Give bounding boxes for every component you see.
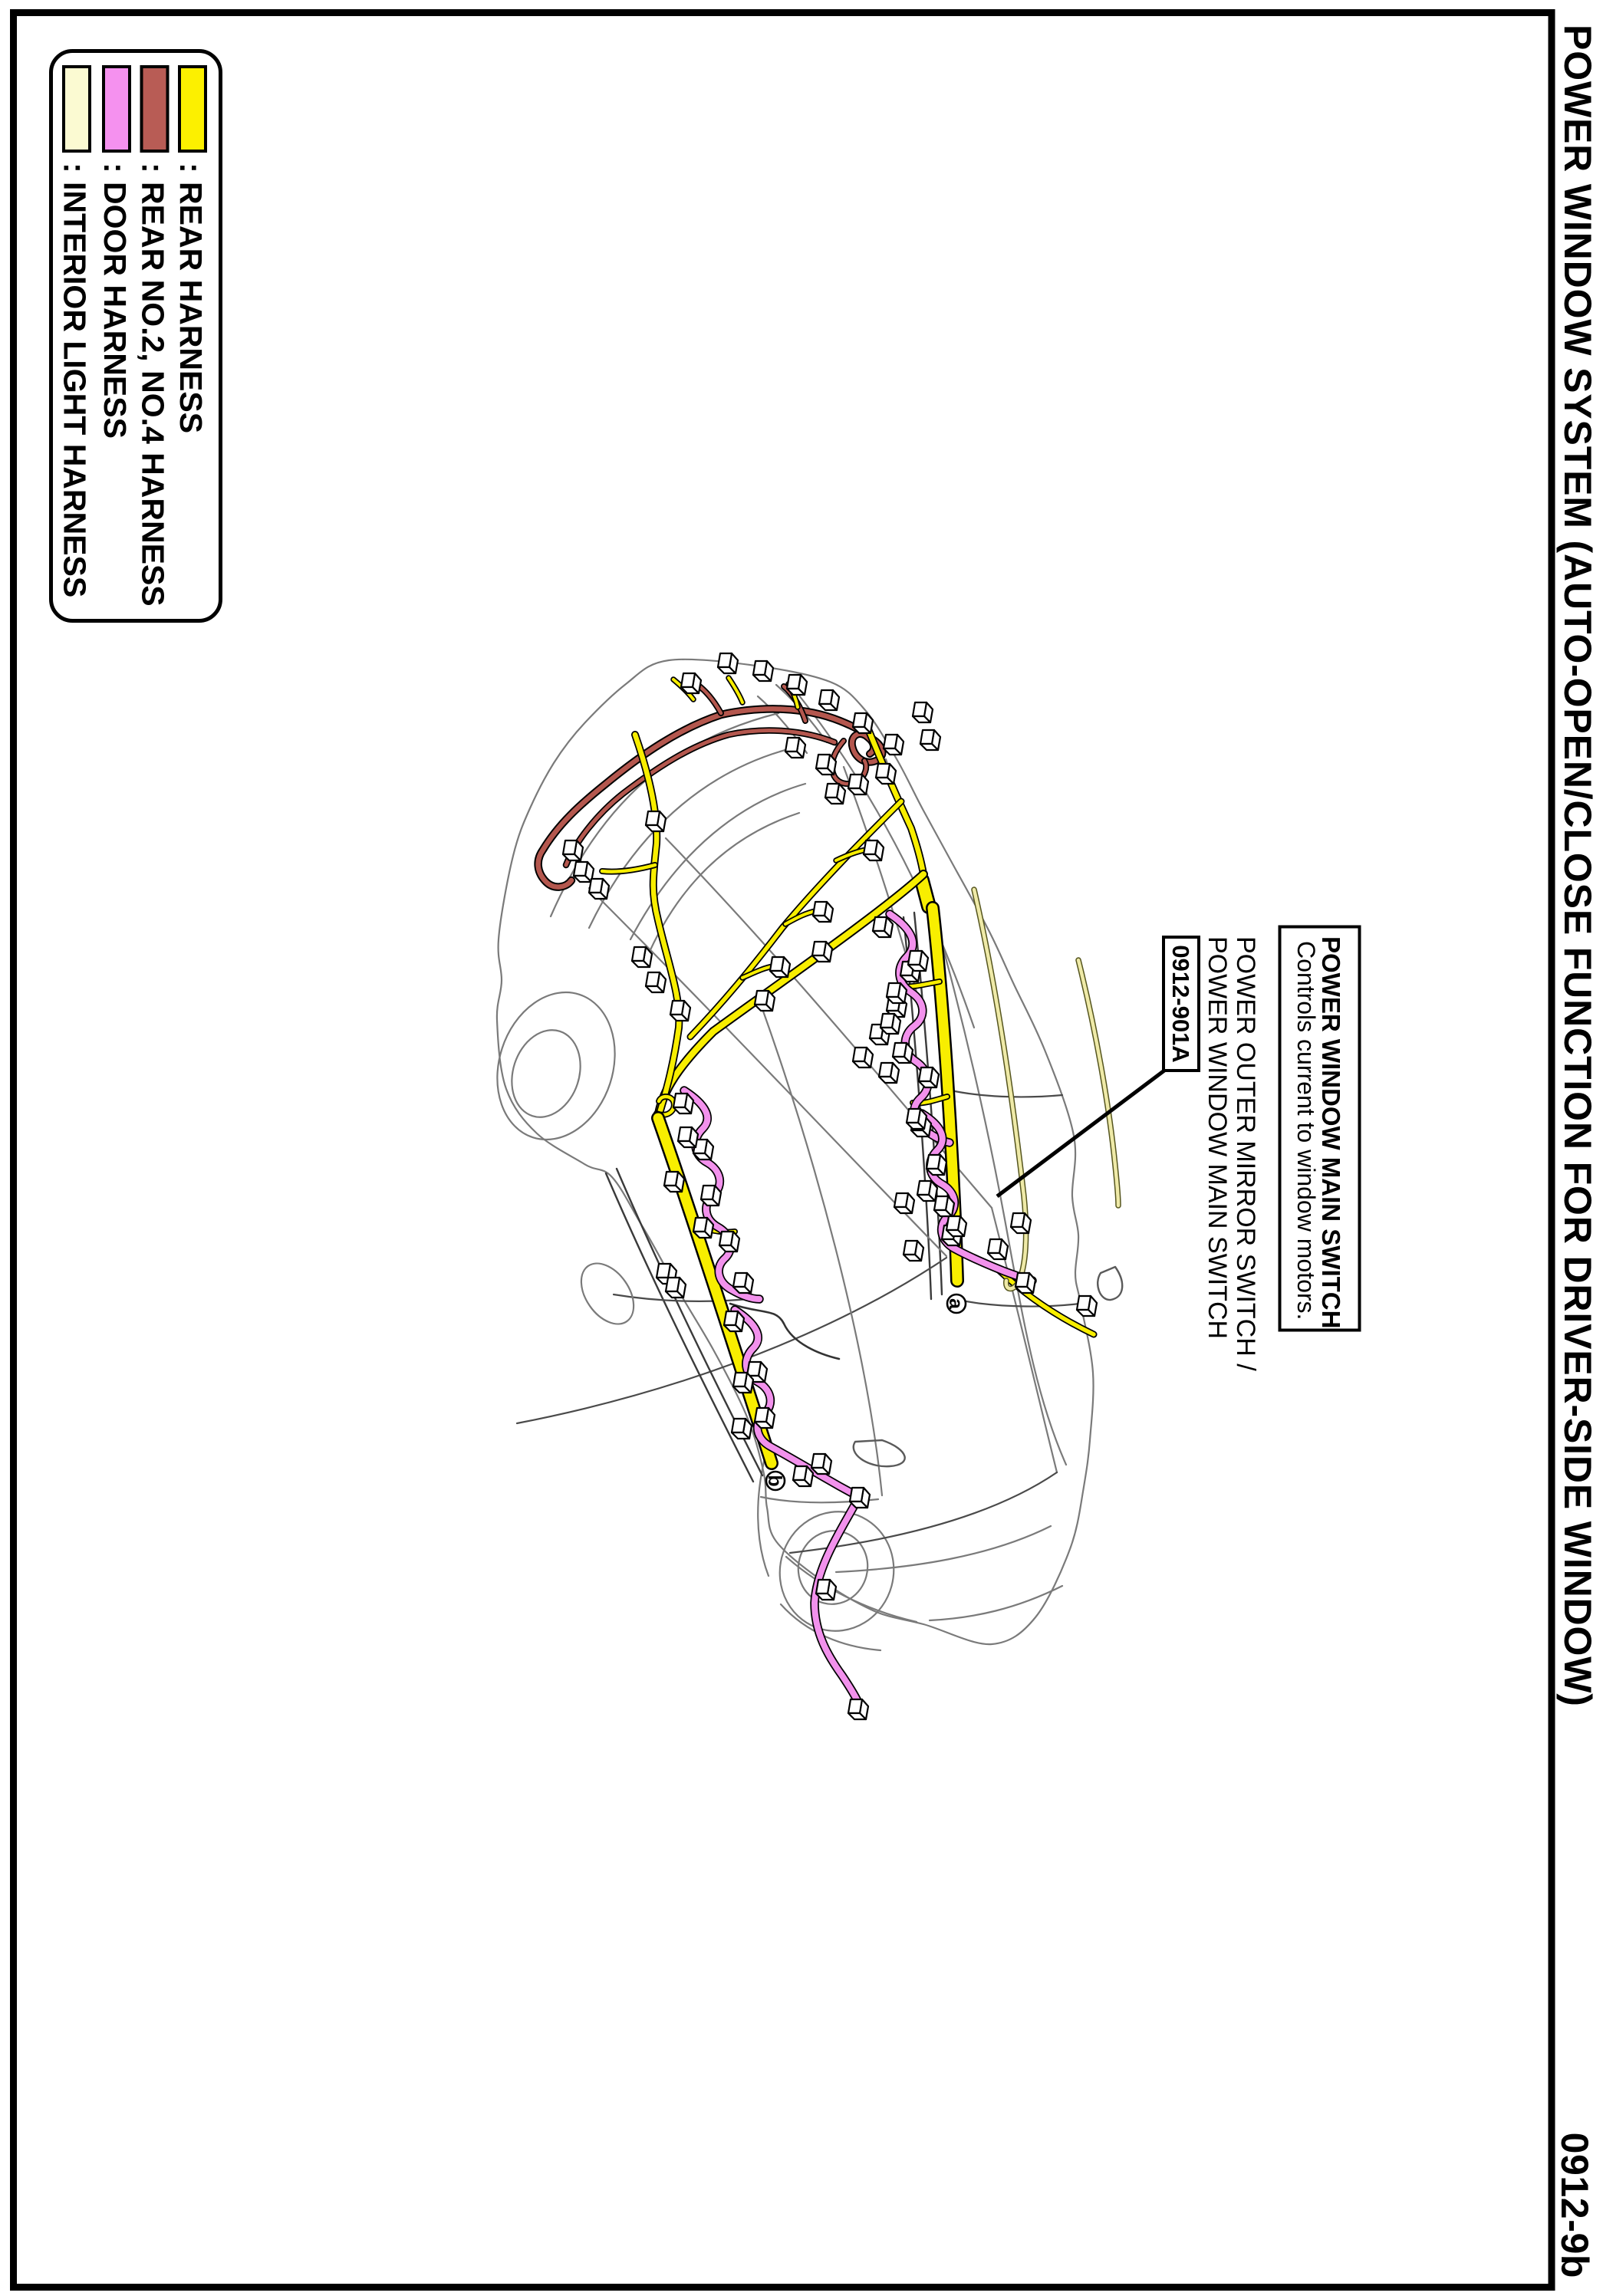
svg-text:POWER WINDOW SYSTEM (AUTO-OPEN: POWER WINDOW SYSTEM (AUTO-OPEN/CLOSE FUN… <box>1556 25 1599 1707</box>
svg-text:0912-901A: 0912-901A <box>1167 945 1194 1062</box>
svg-text:POWER WINDOW MAIN SWITCH: POWER WINDOW MAIN SWITCH <box>1203 936 1232 1339</box>
svg-text:0912-9b: 0912-9b <box>1553 2133 1596 2278</box>
svg-text:Controls current to window mot: Controls current to window motors. <box>1292 941 1320 1320</box>
svg-text:b: b <box>764 1475 785 1486</box>
svg-text:: INTERIOR LIGHT HARNESS: : INTERIOR LIGHT HARNESS <box>58 163 93 597</box>
svg-text:a: a <box>945 1298 966 1310</box>
svg-text:: REAR HARNESS: : REAR HARNESS <box>173 163 209 433</box>
svg-text:: DOOR HARNESS: : DOOR HARNESS <box>97 163 133 439</box>
svg-text:POWER OUTER MIRROR SWITCH /: POWER OUTER MIRROR SWITCH / <box>1231 936 1260 1371</box>
svg-text:POWER WINDOW MAIN SWITCH: POWER WINDOW MAIN SWITCH <box>1317 936 1345 1328</box>
svg-text:: REAR NO.2, NO.4 HARNESS: : REAR NO.2, NO.4 HARNESS <box>136 163 171 607</box>
